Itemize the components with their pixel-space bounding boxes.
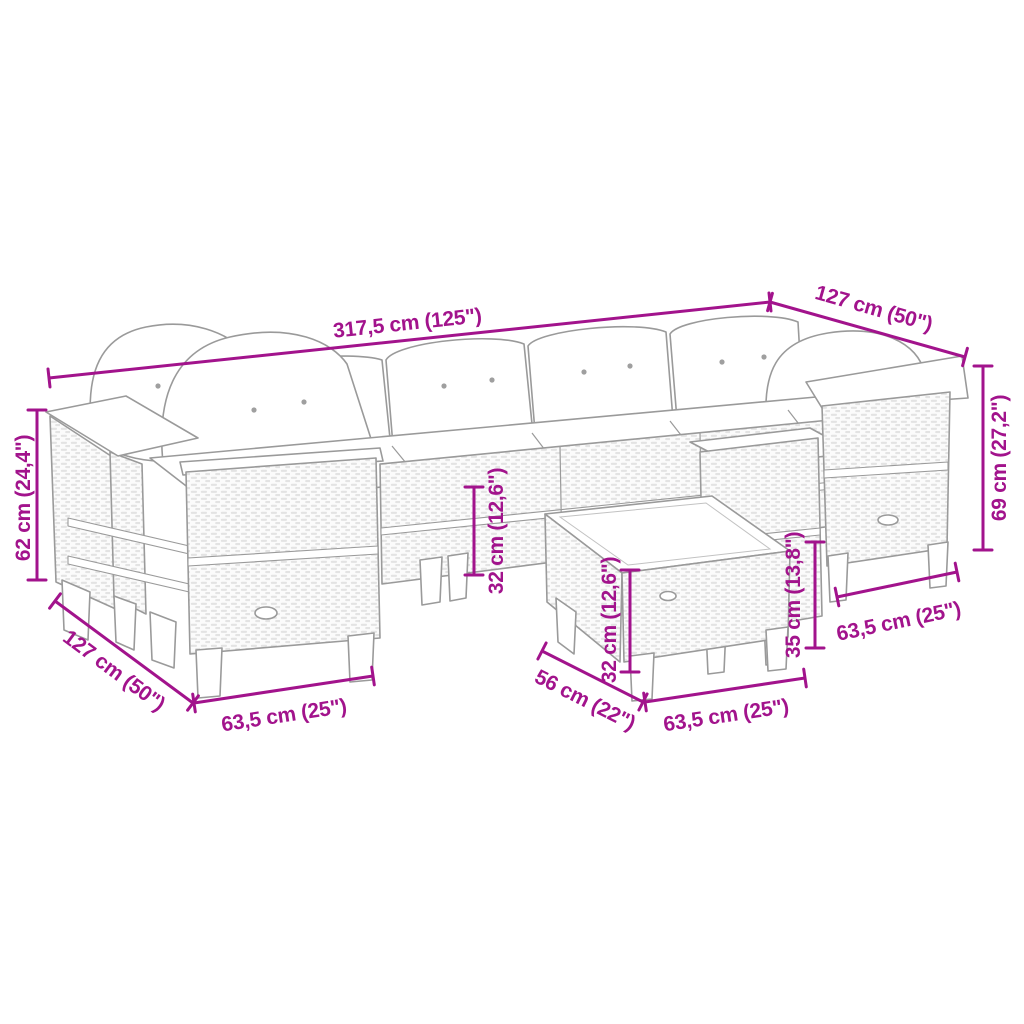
dimension-seat-height-label: 32 cm (12,6") <box>485 468 508 594</box>
product-diagram: 317,5 cm (125") 127 cm (50") 69 cm (27,2… <box>0 0 1024 1024</box>
right-armrest <box>806 356 968 602</box>
left-armrest <box>46 396 198 668</box>
dimension-stool-height-label: 35 cm (13,8") <box>782 532 805 658</box>
leg <box>630 653 654 701</box>
leg <box>928 542 948 588</box>
leg <box>196 648 222 698</box>
dimension-backrest-height-label: 62 cm (24,4") <box>12 435 35 561</box>
dimension-left-seat-width-label: 63,5 cm (25") <box>220 695 348 737</box>
dimension-armrest-height: 69 cm (27,2") <box>974 366 1011 550</box>
dimension-total-width-label: 317,5 cm (125") <box>332 304 483 342</box>
dimension-armrest-height-label: 69 cm (27,2") <box>988 395 1011 521</box>
leg <box>114 596 136 650</box>
diagram-canvas: 317,5 cm (125") 127 cm (50") 69 cm (27,2… <box>0 0 1024 1024</box>
dimension-backrest-height: 62 cm (24,4") <box>12 410 46 580</box>
right-armrest-front-panel <box>822 392 950 566</box>
knob <box>255 607 277 619</box>
leg <box>348 633 374 682</box>
dimension-right-seat-width-label: 63,5 cm (25") <box>835 597 963 645</box>
leg <box>448 553 468 601</box>
dimension-right-section-depth-label: 127 cm (50") <box>813 281 935 336</box>
leg <box>150 612 176 668</box>
dimension-table-height-label: 32 cm (12,6") <box>598 557 621 683</box>
left-corner-module <box>180 448 383 698</box>
knob <box>878 515 898 525</box>
dimension-table-width: 63,5 cm (25") <box>644 669 807 736</box>
knob <box>660 592 676 601</box>
leg <box>420 557 442 605</box>
dimension-right-seat-width: 63,5 cm (25") <box>835 563 963 646</box>
dimension-table-width-label: 63,5 cm (25") <box>662 695 790 736</box>
dimension-table-depth-label: 56 cm (22") <box>531 665 639 735</box>
